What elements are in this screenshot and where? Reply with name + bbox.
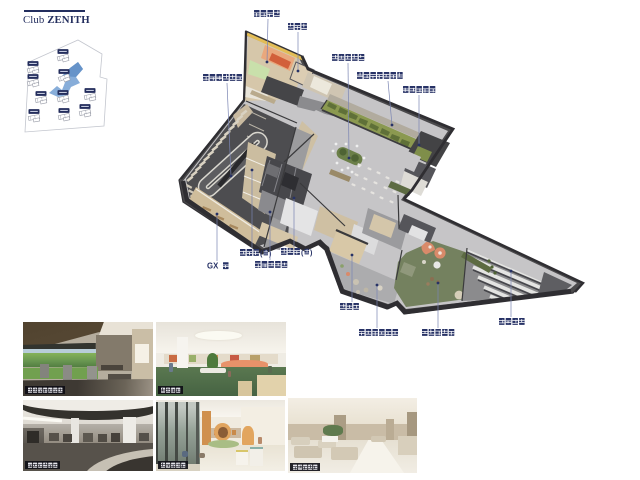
svg-text:GX: GX xyxy=(207,262,219,271)
svg-text:): ) xyxy=(310,248,313,257)
